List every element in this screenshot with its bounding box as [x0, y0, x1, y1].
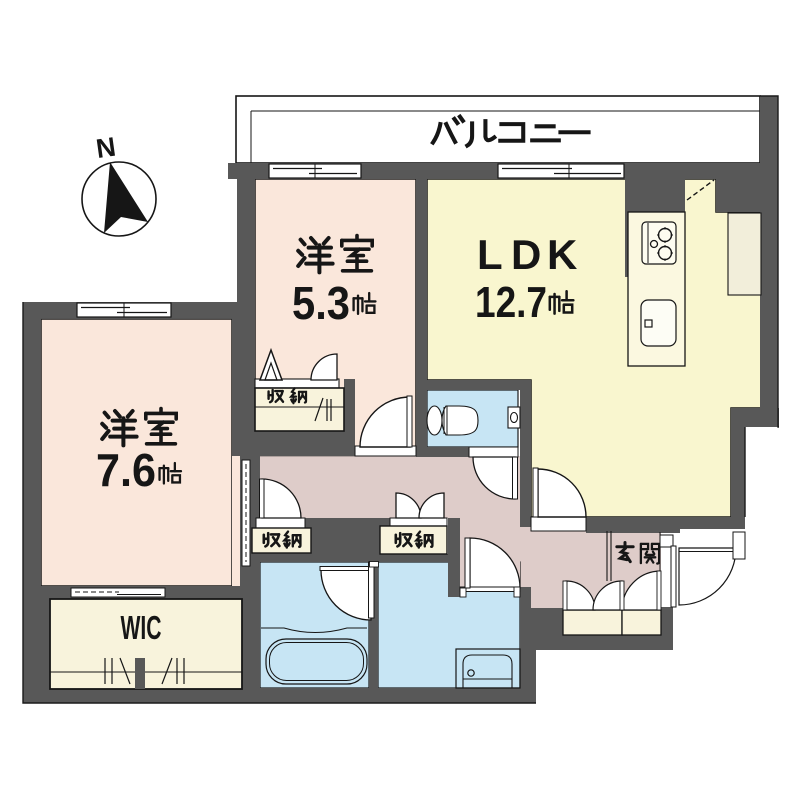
svg-text:LDK: LDK	[477, 231, 577, 278]
svg-text:WIC: WIC	[121, 609, 162, 646]
svg-text:5.3: 5.3	[292, 277, 350, 329]
svg-text:N: N	[94, 132, 117, 164]
svg-text:12.7: 12.7	[475, 278, 547, 327]
svg-text:7.6: 7.6	[96, 444, 156, 496]
